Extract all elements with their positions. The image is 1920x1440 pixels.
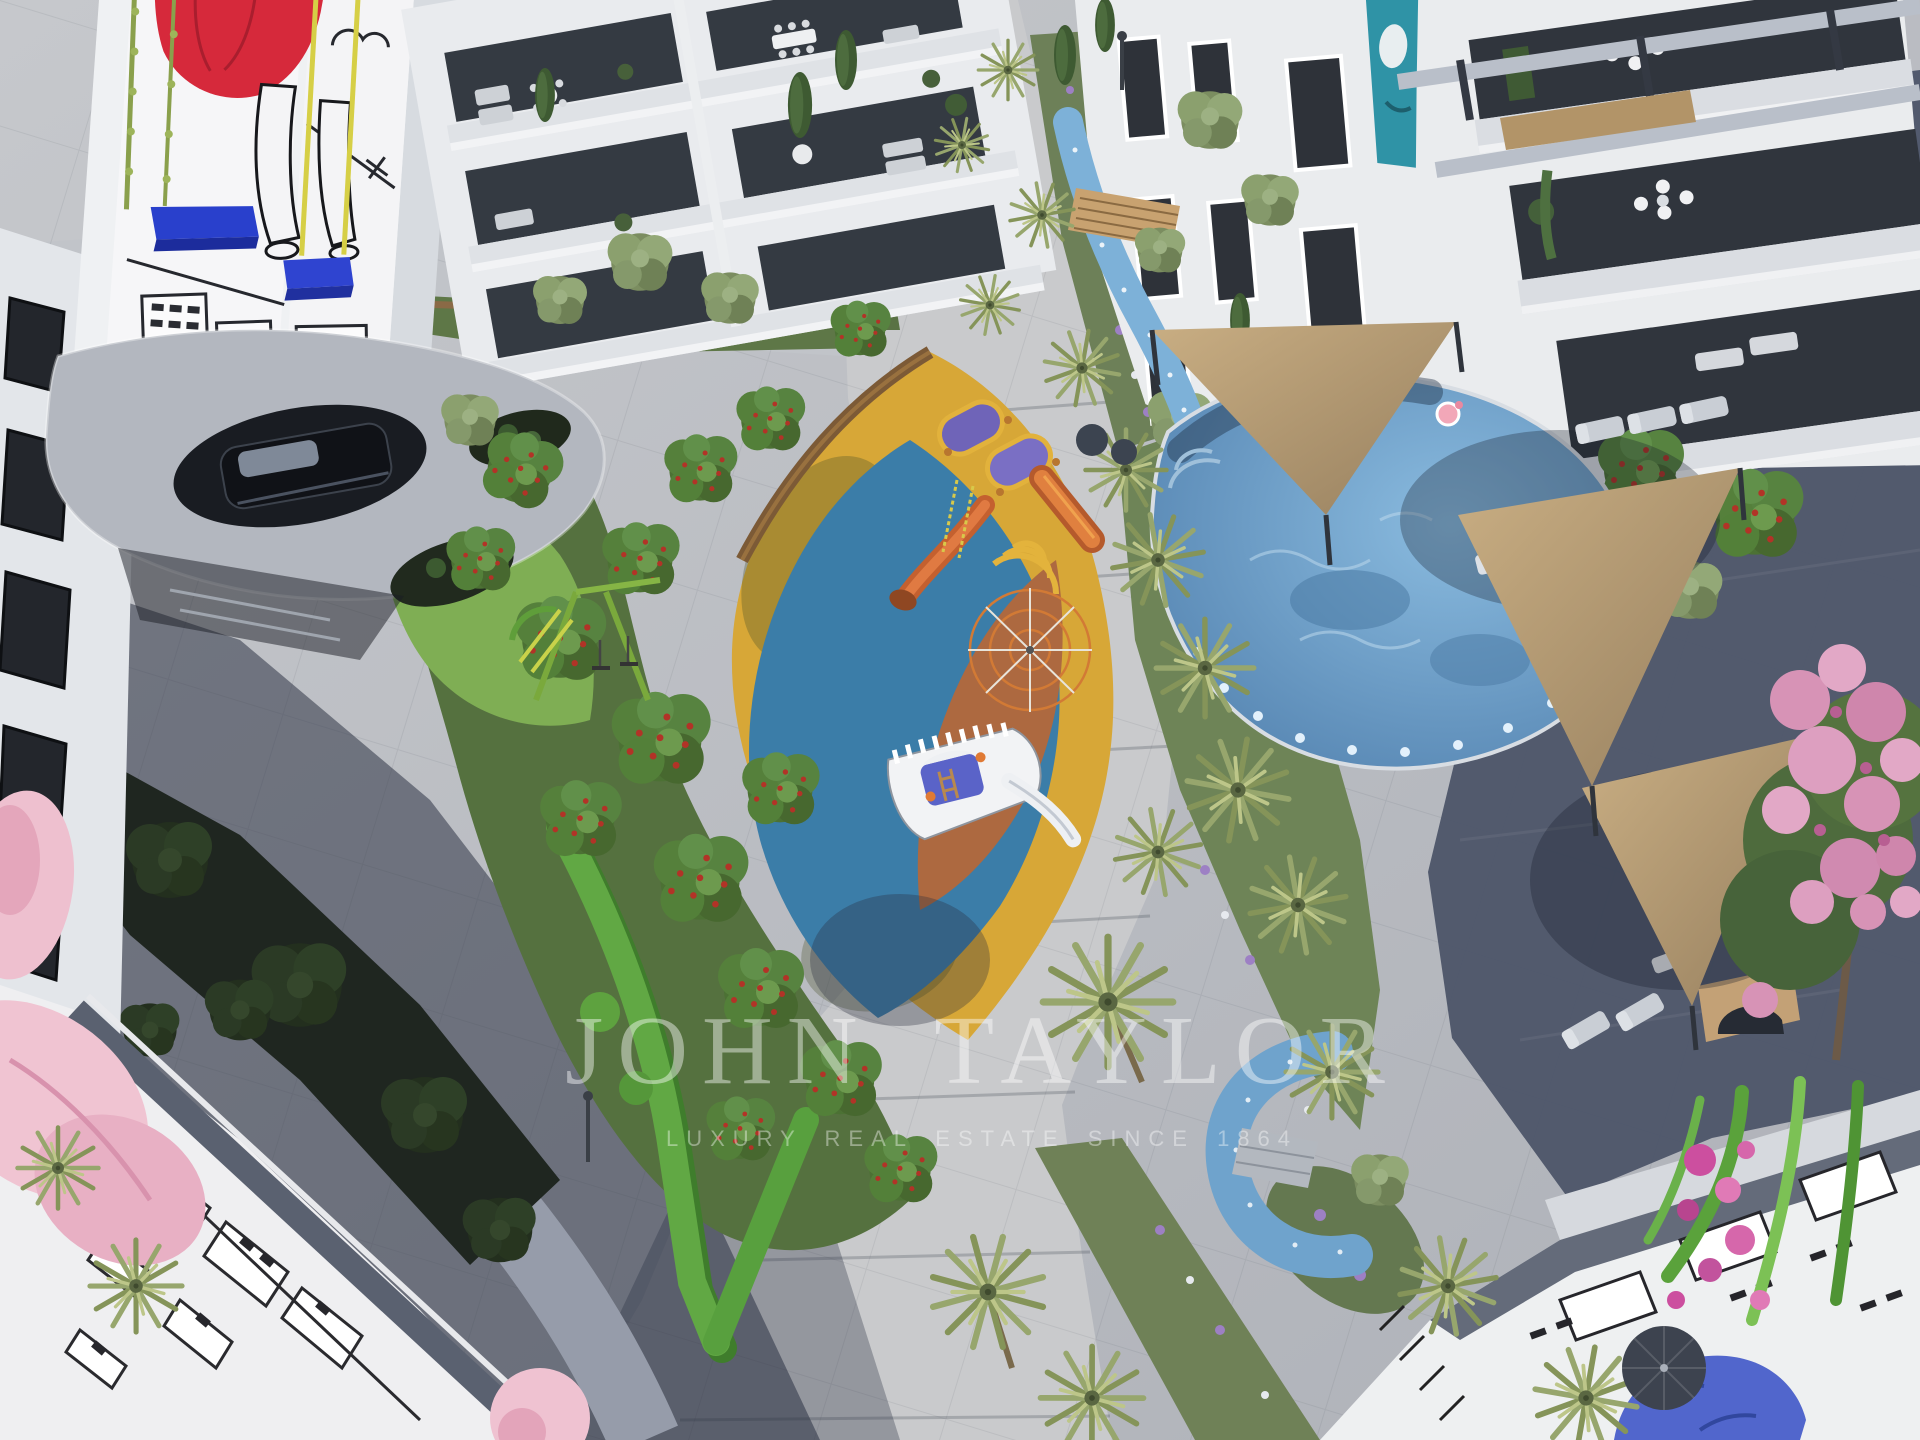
- rope-pyramid: [968, 588, 1092, 712]
- rendering-canvas: JOHN TAYLOR LUXURY REAL ESTATE SINCE 186…: [0, 0, 1920, 1440]
- scene-svg: [0, 0, 1920, 1440]
- patio-umbrella: [1622, 1326, 1706, 1410]
